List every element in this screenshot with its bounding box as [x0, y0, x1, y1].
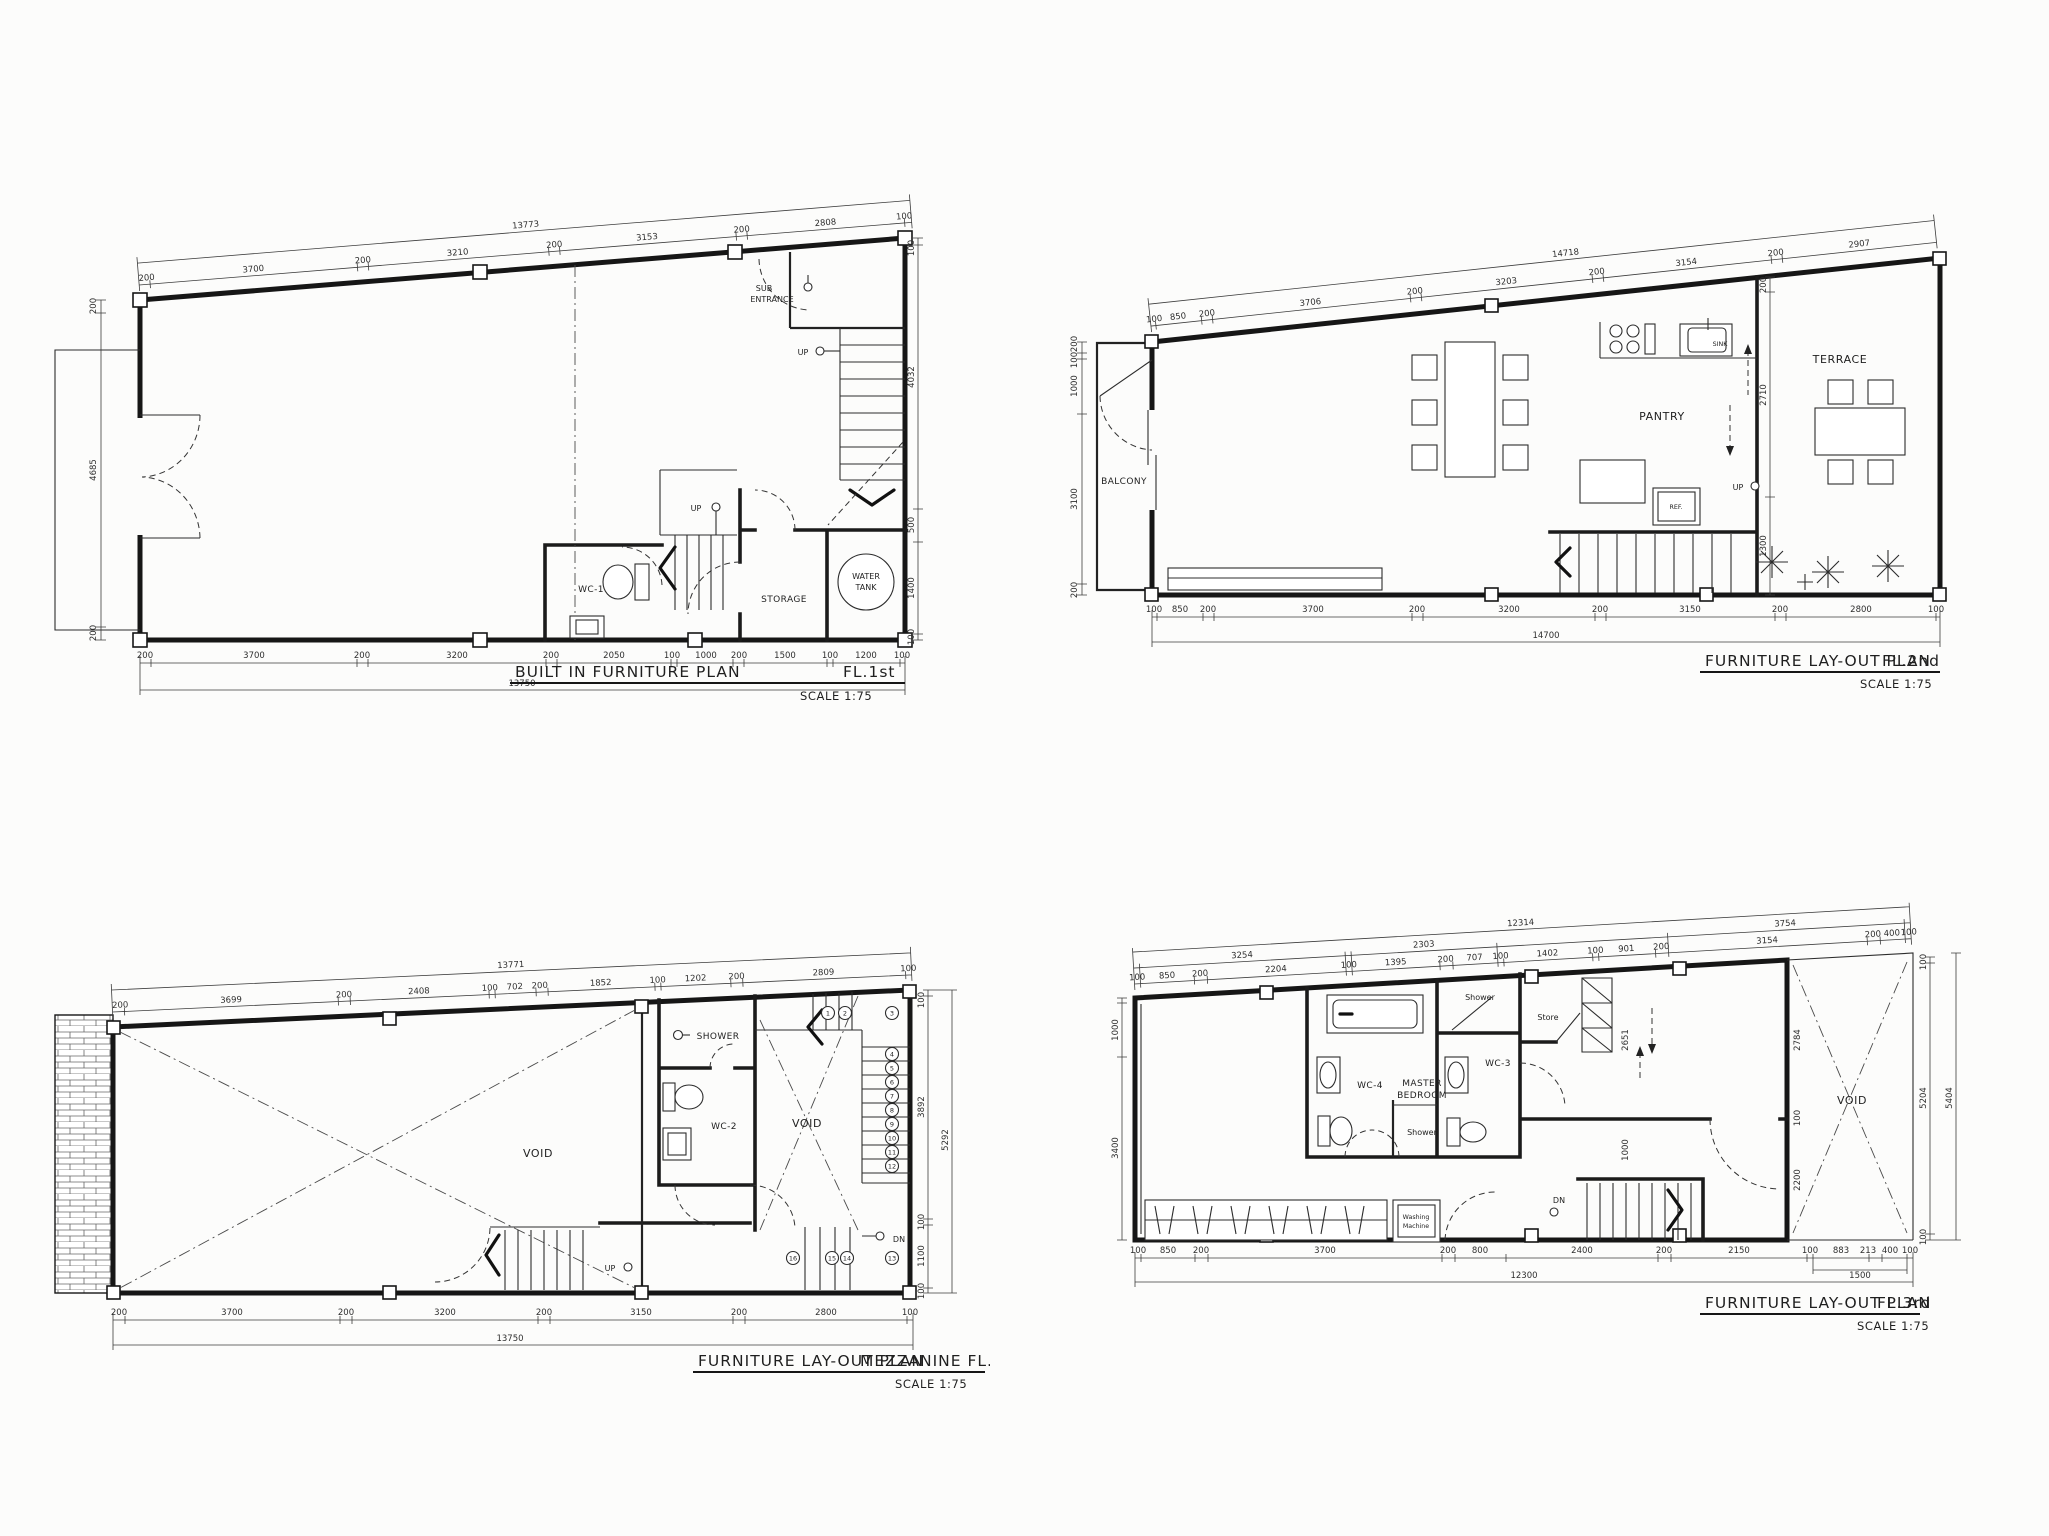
- up-label: UP: [605, 1264, 616, 1273]
- fl1-mid-stairs: UP: [660, 470, 737, 610]
- svg-text:200: 200: [336, 990, 353, 1001]
- fl3-bottom-total: 12300: [1510, 1271, 1537, 1281]
- svg-text:850: 850: [1170, 311, 1187, 323]
- master-label-1: MASTER: [1402, 1079, 1441, 1089]
- mezz-right-total: 5292: [941, 1129, 951, 1151]
- washing-label-1: Washing: [1403, 1214, 1430, 1221]
- svg-text:200: 200: [137, 651, 153, 661]
- mezz-top-total: 13771: [497, 960, 524, 971]
- svg-text:850: 850: [1159, 971, 1176, 982]
- svg-text:3: 3: [890, 1010, 894, 1018]
- svg-text:TANK: TANK: [855, 583, 878, 592]
- svg-text:3100: 3100: [1070, 488, 1080, 510]
- fl3-right-total: 5404: [1945, 1087, 1955, 1109]
- fl2-titleblock: FURNITURE LAY-OUT PLAN FL.2nd SCALE 1:75: [1700, 652, 1940, 691]
- wc1-label: WC-1: [578, 585, 604, 595]
- fl1-wc1: WC-1: [570, 547, 662, 638]
- ref-label: REF.: [1670, 504, 1683, 511]
- fl1-left-dims: 200 4685 200: [89, 298, 106, 641]
- svg-text:200: 200: [338, 1308, 354, 1318]
- dn-label: DN: [1553, 1196, 1565, 1205]
- svg-text:2: 2: [843, 1010, 847, 1018]
- svg-text:200: 200: [1656, 1246, 1672, 1256]
- svg-text:2710: 2710: [1759, 384, 1769, 406]
- plan-fl1-drawing: UP SUB ENTRANCE UP WC-1 STORAGE WATER: [50, 190, 970, 730]
- plan-fl2: BALCONY SINK REF. PANTRY: [1060, 210, 2010, 770]
- svg-text:100: 100: [1070, 352, 1080, 368]
- svg-text:1100: 1100: [917, 1245, 927, 1267]
- svg-text:901: 901: [1618, 944, 1635, 955]
- svg-text:1000: 1000: [1111, 1019, 1121, 1041]
- svg-text:200: 200: [1865, 929, 1882, 940]
- svg-text:1000: 1000: [695, 651, 717, 661]
- plan-fl3: WC-4 MASTER BEDROOM Shower Shower WC-3 S…: [1100, 900, 2020, 1440]
- fl2-bottom-total: 14700: [1532, 631, 1559, 641]
- svg-text:1000: 1000: [1070, 375, 1080, 397]
- svg-text:100: 100: [894, 651, 910, 661]
- svg-text:100: 100: [649, 975, 666, 986]
- svg-text:3154: 3154: [1675, 257, 1698, 269]
- wc2-label: WC-2: [711, 1122, 737, 1132]
- svg-text:100: 100: [482, 983, 499, 994]
- svg-text:100: 100: [1902, 1246, 1918, 1256]
- svg-text:200: 200: [531, 981, 548, 992]
- svg-text:800: 800: [1472, 1246, 1488, 1256]
- svg-text:3154: 3154: [1756, 935, 1778, 946]
- svg-text:1: 1: [826, 1010, 830, 1018]
- dn-label: DN: [893, 1235, 905, 1244]
- svg-text:100: 100: [822, 651, 838, 661]
- fl2-floor: FL.2nd: [1882, 652, 1940, 670]
- svg-text:100: 100: [1340, 960, 1357, 971]
- svg-text:3700: 3700: [1302, 605, 1324, 615]
- mezz-void-right: VOID: [760, 996, 858, 1230]
- svg-text:4685: 4685: [89, 459, 99, 481]
- svg-text:2808: 2808: [814, 217, 836, 229]
- svg-text:3210: 3210: [446, 247, 468, 259]
- svg-text:ENTRANCE: ENTRANCE: [750, 295, 793, 304]
- fl2-top-total: 14718: [1552, 247, 1580, 260]
- svg-text:883: 883: [1833, 1246, 1849, 1256]
- fl2-scale: SCALE 1:75: [1860, 677, 1932, 691]
- svg-text:1000: 1000: [1621, 1139, 1631, 1161]
- fl3-wc4: WC-4 MASTER BEDROOM Shower: [1317, 995, 1447, 1157]
- svg-text:213: 213: [1860, 1246, 1876, 1256]
- svg-text:200: 200: [1772, 605, 1788, 615]
- fl2-balcony: BALCONY: [1101, 477, 1147, 487]
- svg-text:5: 5: [890, 1065, 894, 1073]
- shower-mid-label: Shower: [1407, 1128, 1438, 1137]
- svg-text:2800: 2800: [815, 1308, 837, 1318]
- svg-text:200: 200: [731, 1308, 747, 1318]
- svg-text:400: 400: [1882, 1246, 1898, 1256]
- plan-fl2-drawing: BALCONY SINK REF. PANTRY: [1060, 210, 2010, 770]
- fl2-bottom-dims: 100 850 200 3700 200 3200 200 3150 200 2…: [1146, 605, 1944, 647]
- mezz-titleblock: FURNITURE LAY-OUT PLAN MEZZANINE FL. SCA…: [693, 1352, 990, 1391]
- mezz-right-dims: 100 3892 100 1100 100 5292: [917, 990, 957, 1299]
- svg-text:850: 850: [1172, 605, 1188, 615]
- svg-text:12: 12: [888, 1163, 896, 1171]
- svg-text:16: 16: [789, 1255, 797, 1263]
- svg-text:100: 100: [1900, 927, 1917, 938]
- svg-text:6: 6: [890, 1079, 894, 1087]
- svg-text:100: 100: [1928, 605, 1944, 615]
- up-label: UP: [1733, 483, 1744, 492]
- svg-text:200: 200: [546, 240, 563, 251]
- fl3-top-total: 12314: [1507, 918, 1535, 930]
- fl1-sub-entrance-label: SUB ENTRANCE: [750, 275, 812, 304]
- svg-text:11: 11: [888, 1149, 896, 1157]
- fl1-canopy: [55, 350, 140, 630]
- washing-label-2: Machine: [1403, 1223, 1429, 1230]
- svg-text:200: 200: [733, 224, 750, 235]
- svg-text:4032: 4032: [907, 366, 917, 388]
- svg-text:200: 200: [112, 1000, 129, 1011]
- mezz-scale: SCALE 1:75: [895, 1377, 967, 1391]
- svg-text:200: 200: [89, 298, 99, 314]
- svg-text:15: 15: [828, 1255, 836, 1263]
- fl3-scale: SCALE 1:75: [1857, 1319, 1929, 1333]
- svg-text:200: 200: [1409, 605, 1425, 615]
- svg-text:3153: 3153: [636, 232, 658, 244]
- svg-text:200: 200: [1192, 969, 1209, 980]
- svg-text:707: 707: [1466, 953, 1483, 964]
- fl3-right-dims: 100 5204 100 5404: [1919, 953, 1961, 1245]
- svg-text:100: 100: [917, 992, 927, 1008]
- svg-text:400: 400: [1884, 928, 1901, 939]
- fl1-right-dims: 100 4032 500 1400 100: [907, 238, 923, 645]
- fl1-title: BUILT IN FURNITURE PLAN: [515, 663, 741, 681]
- svg-text:100: 100: [902, 1308, 918, 1318]
- svg-text:3200: 3200: [1498, 605, 1520, 615]
- svg-text:2303: 2303: [1413, 939, 1435, 950]
- svg-text:100: 100: [664, 651, 680, 661]
- fl2-dining-set: [1412, 342, 1528, 477]
- svg-text:9: 9: [890, 1121, 894, 1129]
- fl1-floor: FL.1st: [843, 663, 896, 681]
- svg-text:100: 100: [1802, 1246, 1818, 1256]
- svg-text:1402: 1402: [1536, 948, 1558, 959]
- svg-text:200: 200: [536, 1308, 552, 1318]
- fl1-main-stairs: UP: [798, 328, 905, 525]
- svg-text:1852: 1852: [590, 978, 612, 989]
- balcony-label: BALCONY: [1101, 477, 1147, 487]
- mezz-mid-stairs: UP: [435, 1228, 632, 1290]
- fl3-washing-machine: Washing Machine: [1393, 1192, 1495, 1242]
- drawing-sheet: UP SUB ENTRANCE UP WC-1 STORAGE WATER: [0, 0, 2049, 1536]
- fl3-direction-arrows: [1636, 1008, 1780, 1189]
- void-left-label: VOID: [523, 1147, 553, 1160]
- svg-text:WATER: WATER: [852, 572, 880, 581]
- svg-text:7: 7: [890, 1093, 894, 1101]
- svg-text:200: 200: [354, 651, 370, 661]
- svg-text:100: 100: [1587, 946, 1604, 957]
- svg-text:100: 100: [1129, 972, 1146, 983]
- svg-text:200: 200: [1767, 248, 1784, 260]
- storage-label: STORAGE: [761, 595, 807, 605]
- svg-text:2784: 2784: [1793, 1029, 1803, 1051]
- mezz-step-numbers: 1 2 3 4 5 6 7 8 9 10 11 12 13 14 15 16: [787, 1007, 899, 1265]
- fl3-floor: FL.3rd: [1877, 1294, 1931, 1312]
- svg-text:3400: 3400: [1111, 1137, 1121, 1159]
- fl3-wardrobe: [1145, 1200, 1387, 1240]
- svg-text:3203: 3203: [1495, 276, 1518, 288]
- svg-text:1202: 1202: [685, 973, 707, 984]
- fl3-left-dims: 1000 3400: [1111, 998, 1127, 1240]
- svg-text:200: 200: [1198, 308, 1215, 320]
- fl2-walls: [1097, 258, 1940, 595]
- svg-text:200: 200: [111, 1308, 127, 1318]
- plan-fl1: UP SUB ENTRANCE UP WC-1 STORAGE WATER: [50, 190, 970, 730]
- svg-text:10: 10: [888, 1135, 896, 1143]
- svg-text:1200: 1200: [855, 651, 877, 661]
- svg-text:3150: 3150: [1679, 605, 1701, 615]
- svg-text:SUB: SUB: [756, 284, 772, 293]
- svg-text:3150: 3150: [630, 1308, 652, 1318]
- svg-text:100: 100: [917, 1283, 927, 1299]
- svg-text:200: 200: [1193, 1246, 1209, 1256]
- svg-text:2200: 2200: [1793, 1169, 1803, 1191]
- svg-text:1300: 1300: [1759, 535, 1769, 557]
- fl3-dn-stairs: DN: [1550, 1183, 1691, 1240]
- fl1-top-dims: 200 3700 200 3210 200 3153 200 2808 100 …: [136, 190, 913, 291]
- fl1-storage: STORAGE: [688, 490, 807, 614]
- svg-text:3700: 3700: [242, 264, 264, 276]
- mezz-wc2: WC-2: [663, 1083, 737, 1225]
- svg-text:200: 200: [1440, 1246, 1456, 1256]
- svg-text:200: 200: [1070, 582, 1080, 598]
- svg-text:2809: 2809: [812, 967, 834, 978]
- svg-text:3706: 3706: [1299, 297, 1322, 309]
- svg-text:100: 100: [907, 629, 917, 645]
- fl2-left-dims: 200 100 1000 3100 200: [1070, 336, 1087, 598]
- svg-text:2408: 2408: [408, 986, 430, 997]
- svg-text:4: 4: [890, 1051, 894, 1059]
- svg-text:100: 100: [1492, 951, 1509, 962]
- svg-text:200: 200: [89, 625, 99, 641]
- fl3-titleblock: FURNITURE LAY-OUT PLAN FL.3rd SCALE 1:75: [1700, 1294, 1931, 1333]
- svg-text:100: 100: [1146, 605, 1162, 615]
- sink-label: SINK: [1713, 341, 1729, 348]
- void-right-label: VOID: [792, 1117, 822, 1130]
- svg-text:1400: 1400: [907, 577, 917, 599]
- fl1-titleblock: BUILT IN FURNITURE PLAN FL.1st SCALE 1:7…: [510, 663, 905, 703]
- fl1-top-total: 13773: [512, 219, 540, 231]
- wc4-label: WC-4: [1357, 1081, 1383, 1091]
- fl2-bench: [1168, 568, 1382, 590]
- svg-text:200: 200: [138, 273, 155, 284]
- svg-text:3700: 3700: [243, 651, 265, 661]
- plant-icons: [1756, 546, 1904, 590]
- svg-text:850: 850: [1160, 1246, 1176, 1256]
- svg-text:2400: 2400: [1571, 1246, 1593, 1256]
- pantry-label: PANTRY: [1639, 410, 1685, 423]
- svg-text:200: 200: [731, 651, 747, 661]
- svg-text:100: 100: [1130, 1246, 1146, 1256]
- svg-text:200: 200: [1437, 954, 1454, 965]
- svg-text:100: 100: [896, 211, 913, 222]
- fl1-entry-doors: [140, 259, 810, 538]
- up-mid-label: UP: [691, 504, 702, 513]
- void-label: VOID: [1837, 1094, 1867, 1107]
- svg-text:3200: 3200: [446, 651, 468, 661]
- svg-text:2204: 2204: [1265, 964, 1287, 975]
- svg-text:200: 200: [1406, 286, 1423, 298]
- mezz-floor: MEZZANINE FL.: [860, 1352, 990, 1370]
- svg-text:3254: 3254: [1231, 950, 1253, 961]
- svg-text:200: 200: [1200, 605, 1216, 615]
- svg-text:2651: 2651: [1621, 1029, 1631, 1051]
- master-label-2: BEDROOM: [1397, 1091, 1447, 1101]
- store-label: Store: [1537, 1013, 1558, 1022]
- fl3-inner-dims: 2651 1000 2784 100 2200: [1621, 1029, 1803, 1191]
- svg-text:3200: 3200: [434, 1308, 456, 1318]
- svg-text:3700: 3700: [221, 1308, 243, 1318]
- terrace-label: TERRACE: [1812, 353, 1868, 366]
- fl2-kitchen: SINK REF. PANTRY: [1580, 318, 1757, 525]
- up-label: UP: [798, 348, 809, 357]
- fl3-walls: [1135, 953, 1913, 1240]
- svg-text:3699: 3699: [220, 995, 242, 1006]
- fl3-void: VOID: [1793, 962, 1907, 1233]
- svg-text:2907: 2907: [1848, 238, 1871, 250]
- svg-text:200: 200: [1588, 267, 1605, 279]
- fl2-inner-dims: 200 2710 1300: [1759, 277, 1775, 595]
- svg-text:3892: 3892: [917, 1096, 927, 1118]
- mezz-walls: [113, 990, 910, 1293]
- fl1-scale: SCALE 1:75: [800, 689, 872, 703]
- svg-text:200: 200: [354, 255, 371, 266]
- shower-label: SHOWER: [697, 1032, 740, 1042]
- svg-text:3754: 3754: [1774, 918, 1796, 929]
- svg-text:2800: 2800: [1850, 605, 1872, 615]
- mezz-brick-pier: [55, 1015, 113, 1293]
- svg-text:13: 13: [888, 1255, 896, 1263]
- plan-mezz-drawing: VOID SHOWER WC-2 VOID DN 1 2: [50, 930, 990, 1460]
- svg-text:2050: 2050: [603, 651, 625, 661]
- fl1-water-tank: WATER TANK: [838, 554, 894, 610]
- fl2-terrace: TERRACE: [1756, 353, 1905, 590]
- fl3-bottom-dims: 100 850 200 3700 200 800 2400 200 2150 1…: [1130, 1246, 1918, 1287]
- mezz-bottom-dims: 200 3700 200 3200 200 3150 200 2800 100 …: [111, 1308, 918, 1350]
- svg-text:200: 200: [728, 972, 745, 983]
- svg-text:200: 200: [1759, 277, 1769, 293]
- svg-text:100: 100: [900, 964, 917, 975]
- svg-text:8: 8: [890, 1107, 894, 1115]
- svg-text:100: 100: [917, 1214, 927, 1230]
- mezz-bottom-total: 13750: [496, 1334, 523, 1344]
- svg-text:500: 500: [907, 517, 917, 533]
- svg-text:100: 100: [1146, 314, 1163, 326]
- plan-mezzanine: VOID SHOWER WC-2 VOID DN 1 2: [50, 930, 990, 1460]
- svg-text:5204: 5204: [1919, 1087, 1929, 1109]
- svg-text:702: 702: [506, 982, 523, 993]
- svg-text:200: 200: [1070, 336, 1080, 352]
- svg-text:14: 14: [843, 1255, 851, 1263]
- fl3-bottom-sub: 1500: [1849, 1271, 1871, 1281]
- svg-text:200: 200: [1653, 942, 1670, 953]
- plan-fl3-drawing: WC-4 MASTER BEDROOM Shower Shower WC-3 S…: [1100, 900, 2020, 1440]
- svg-text:100: 100: [1919, 954, 1929, 970]
- svg-text:1395: 1395: [1385, 957, 1407, 968]
- svg-text:3700: 3700: [1314, 1246, 1336, 1256]
- mezz-void-left: VOID: [120, 1010, 635, 1288]
- svg-text:2150: 2150: [1728, 1246, 1750, 1256]
- svg-text:200: 200: [1592, 605, 1608, 615]
- svg-text:1500: 1500: [774, 651, 796, 661]
- shower-top-label: Shower: [1465, 993, 1496, 1002]
- svg-text:200: 200: [543, 651, 559, 661]
- svg-text:100: 100: [907, 240, 917, 256]
- svg-text:100: 100: [1793, 1110, 1803, 1126]
- svg-text:100: 100: [1919, 1229, 1929, 1245]
- wc3-label: WC-3: [1485, 1059, 1511, 1069]
- mezz-shower: SHOWER: [674, 1031, 740, 1069]
